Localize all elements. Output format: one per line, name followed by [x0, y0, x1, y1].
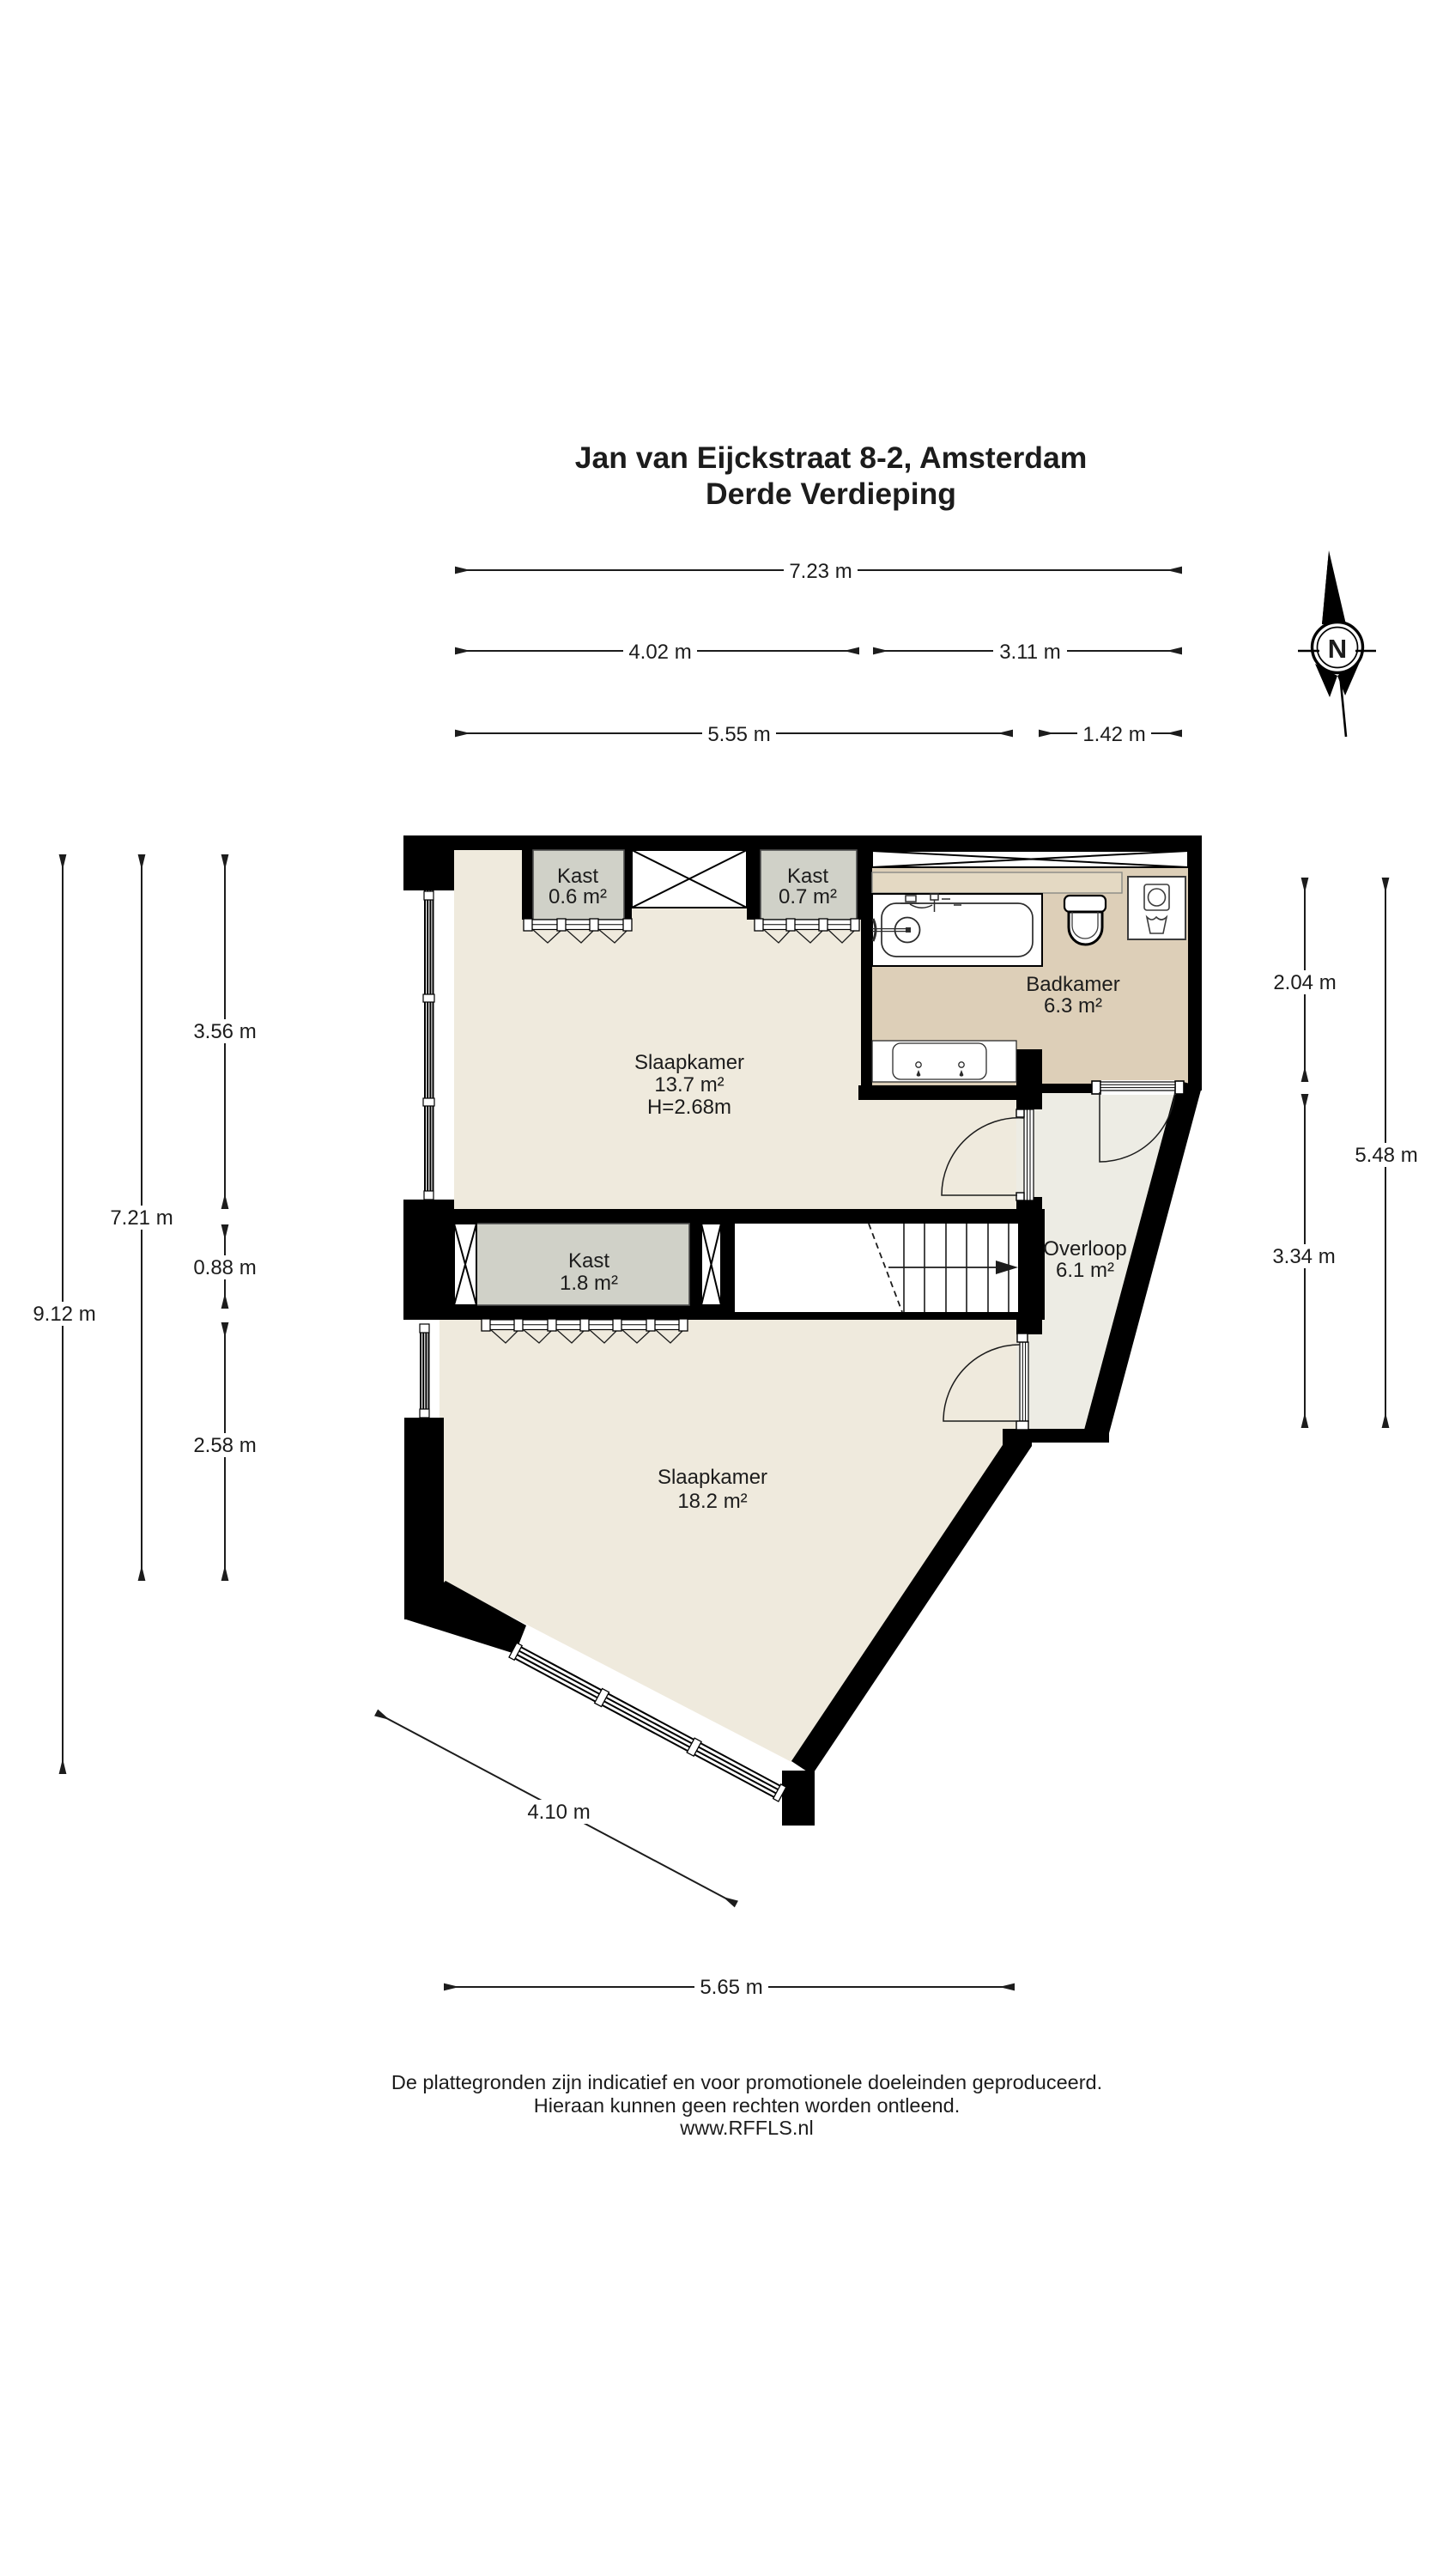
svg-text:6.3 m²: 6.3 m²	[1044, 994, 1102, 1018]
svg-text:www.RFFLS.nl: www.RFFLS.nl	[679, 2117, 813, 2139]
svg-text:Kast: Kast	[787, 865, 828, 888]
svg-text:H=2.68m: H=2.68m	[647, 1096, 731, 1119]
svg-text:5.55 m: 5.55 m	[707, 723, 770, 746]
svg-text:3.11 m: 3.11 m	[999, 641, 1061, 664]
svg-text:Badkamer: Badkamer	[1026, 973, 1119, 996]
svg-text:18.2 m²: 18.2 m²	[677, 1490, 747, 1513]
svg-text:4.02 m: 4.02 m	[628, 641, 691, 664]
svg-text:3.34 m: 3.34 m	[1272, 1245, 1335, 1268]
svg-text:2.04 m: 2.04 m	[1273, 971, 1336, 994]
svg-text:0.88 m: 0.88 m	[193, 1256, 256, 1279]
svg-text:Hieraan kunnen geen rechten wo: Hieraan kunnen geen rechten worden ontle…	[534, 2094, 960, 2117]
svg-text:Slaapkamer: Slaapkamer	[634, 1051, 744, 1074]
svg-text:N: N	[1328, 634, 1347, 664]
svg-text:Jan van Eijckstraat 8-2, Amste: Jan van Eijckstraat 8-2, Amsterdam	[575, 440, 1088, 475]
svg-text:5.48 m: 5.48 m	[1355, 1144, 1417, 1167]
svg-text:0.6 m²: 0.6 m²	[549, 885, 607, 908]
svg-text:7.23 m: 7.23 m	[789, 560, 852, 583]
svg-text:Derde Verdieping: Derde Verdieping	[706, 477, 956, 511]
svg-text:4.10 m: 4.10 m	[527, 1801, 590, 1824]
svg-text:Kast: Kast	[568, 1249, 609, 1273]
svg-text:6.1 m²: 6.1 m²	[1056, 1259, 1114, 1282]
svg-text:Kast: Kast	[557, 865, 598, 888]
svg-text:1.8 m²: 1.8 m²	[560, 1272, 618, 1295]
svg-text:Slaapkamer: Slaapkamer	[658, 1466, 767, 1489]
svg-text:De plattegronden zijn indicati: De plattegronden zijn indicatief en voor…	[391, 2071, 1102, 2093]
svg-text:13.7 m²: 13.7 m²	[654, 1073, 724, 1097]
svg-text:7.21 m: 7.21 m	[110, 1206, 173, 1230]
svg-text:3.56 m: 3.56 m	[193, 1020, 256, 1043]
svg-text:1.42 m: 1.42 m	[1082, 723, 1145, 746]
svg-text:Overloop: Overloop	[1043, 1237, 1126, 1261]
svg-text:9.12 m: 9.12 m	[33, 1303, 95, 1326]
svg-text:0.7 m²: 0.7 m²	[779, 885, 837, 908]
svg-text:5.65 m: 5.65 m	[700, 1976, 762, 1999]
svg-text:2.58 m: 2.58 m	[193, 1434, 256, 1457]
